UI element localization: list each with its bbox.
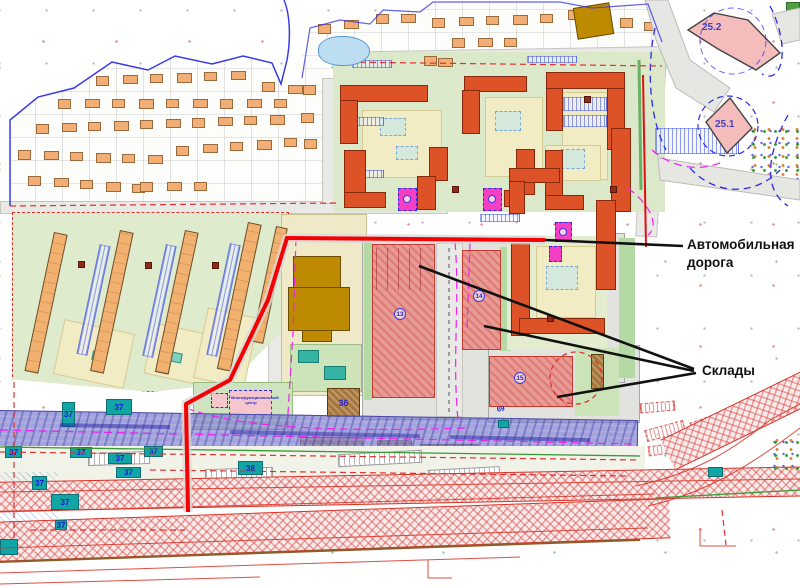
zone-25-2-label: 25.2 xyxy=(702,22,721,33)
highlighted-road-line xyxy=(186,238,545,512)
leader-warehouse-3 xyxy=(557,373,696,397)
warehouses-annotation-label: Склады xyxy=(702,362,755,380)
site-plan-map: Многофункциональный центр 36363636 37373… xyxy=(0,0,800,588)
warehouse-1-number: 13 xyxy=(394,308,406,320)
leader-warehouse-2 xyxy=(484,326,694,371)
warehouse-3-number: 15 xyxy=(514,372,526,384)
warehouse-2-number: 14 xyxy=(473,290,485,302)
pond xyxy=(318,36,370,66)
leader-warehouse-1 xyxy=(419,266,694,369)
zone-25-1-label: 25.1 xyxy=(715,119,734,130)
leader-road xyxy=(545,240,683,246)
annotation-leader-lines xyxy=(419,240,696,397)
road-annotation-label: Автомобильная дорога xyxy=(687,236,795,272)
map-lines-overlay xyxy=(0,0,800,588)
